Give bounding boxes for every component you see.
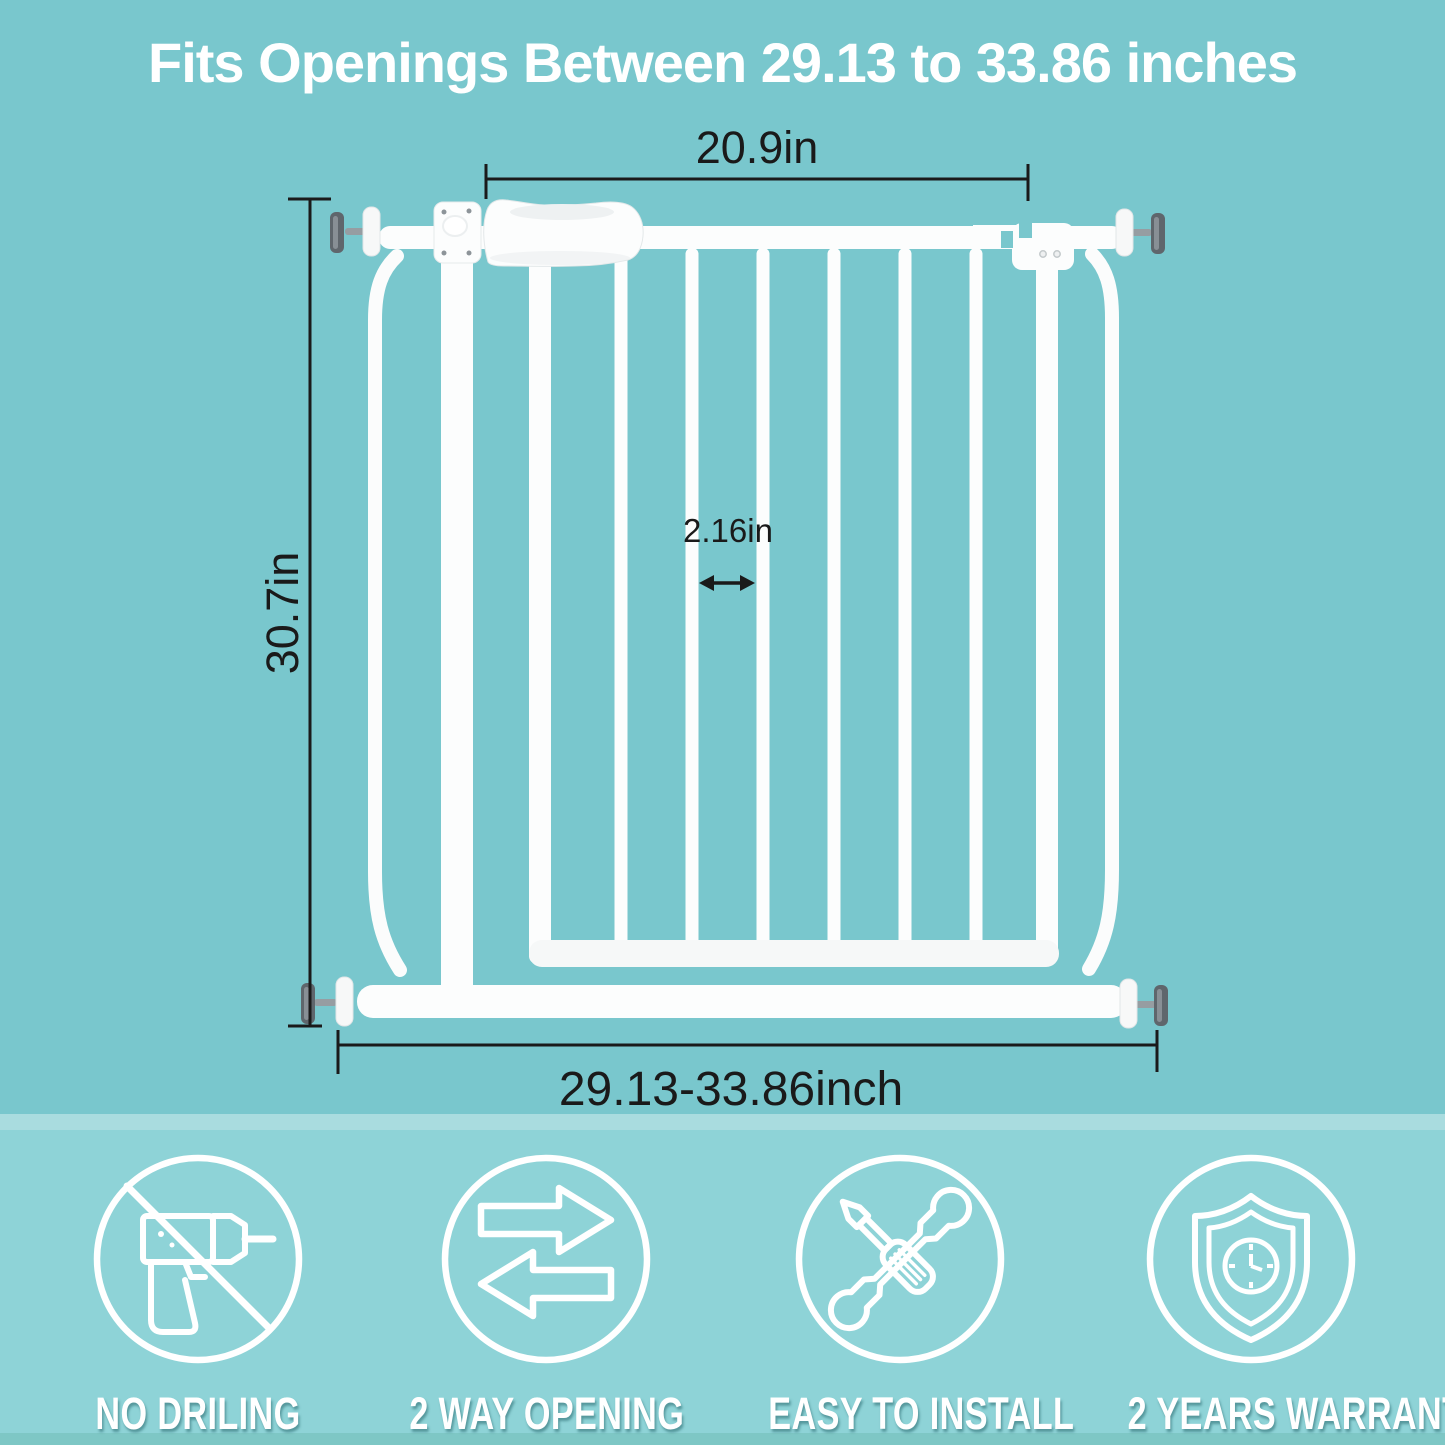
door-width-label: 20.9in [657, 122, 857, 174]
door-hinge-post [529, 252, 551, 964]
height-label: 30.7in [257, 552, 309, 675]
pressure-screw-top-left [330, 207, 380, 256]
bar-gap-label: 2.16in [628, 512, 828, 550]
feature-label: NO DRILING [95, 1388, 300, 1440]
feature-easy-to-install: EASY TO INSTALL [720, 1144, 1080, 1440]
door-latch-post [1036, 262, 1058, 964]
pressure-screw-bottom-right [1120, 979, 1168, 1028]
latch-block [973, 221, 1074, 270]
easy-to-install-icon [785, 1144, 1015, 1374]
pressure-screw-top-right [1116, 209, 1165, 256]
feature-label: 2 YEARS WARRANTY [1128, 1388, 1445, 1440]
bottom-rail [357, 985, 1127, 1018]
left-side-frame-tube [375, 256, 400, 970]
product-infographic: Fits Openings Between 29.13 to 33.86 inc… [0, 0, 1445, 1445]
right-side-frame-tube [1089, 254, 1112, 969]
two-way-opening-icon [431, 1144, 661, 1374]
hinge-block [434, 202, 481, 263]
feature-label: 2 WAY OPENING [409, 1388, 684, 1440]
feature-no-drilling: NO DRILING [18, 1144, 378, 1440]
gate-bars [615, 248, 983, 958]
door-bottom-rail [529, 940, 1059, 967]
no-drilling-icon [83, 1144, 313, 1374]
left-wall-post [441, 250, 473, 995]
feature-two-years-warranty: 2 YEARS WARRANTY [1071, 1144, 1431, 1440]
feature-label: EASY TO INSTALL [768, 1388, 1074, 1440]
opening-range-label: 29.13-33.86inch [526, 1062, 936, 1117]
two-years-warranty-icon [1136, 1144, 1366, 1374]
feature-two-way-opening: 2 WAY OPENING [366, 1144, 726, 1440]
bar-gap-arrow [699, 575, 755, 591]
gate-handle [484, 200, 643, 267]
